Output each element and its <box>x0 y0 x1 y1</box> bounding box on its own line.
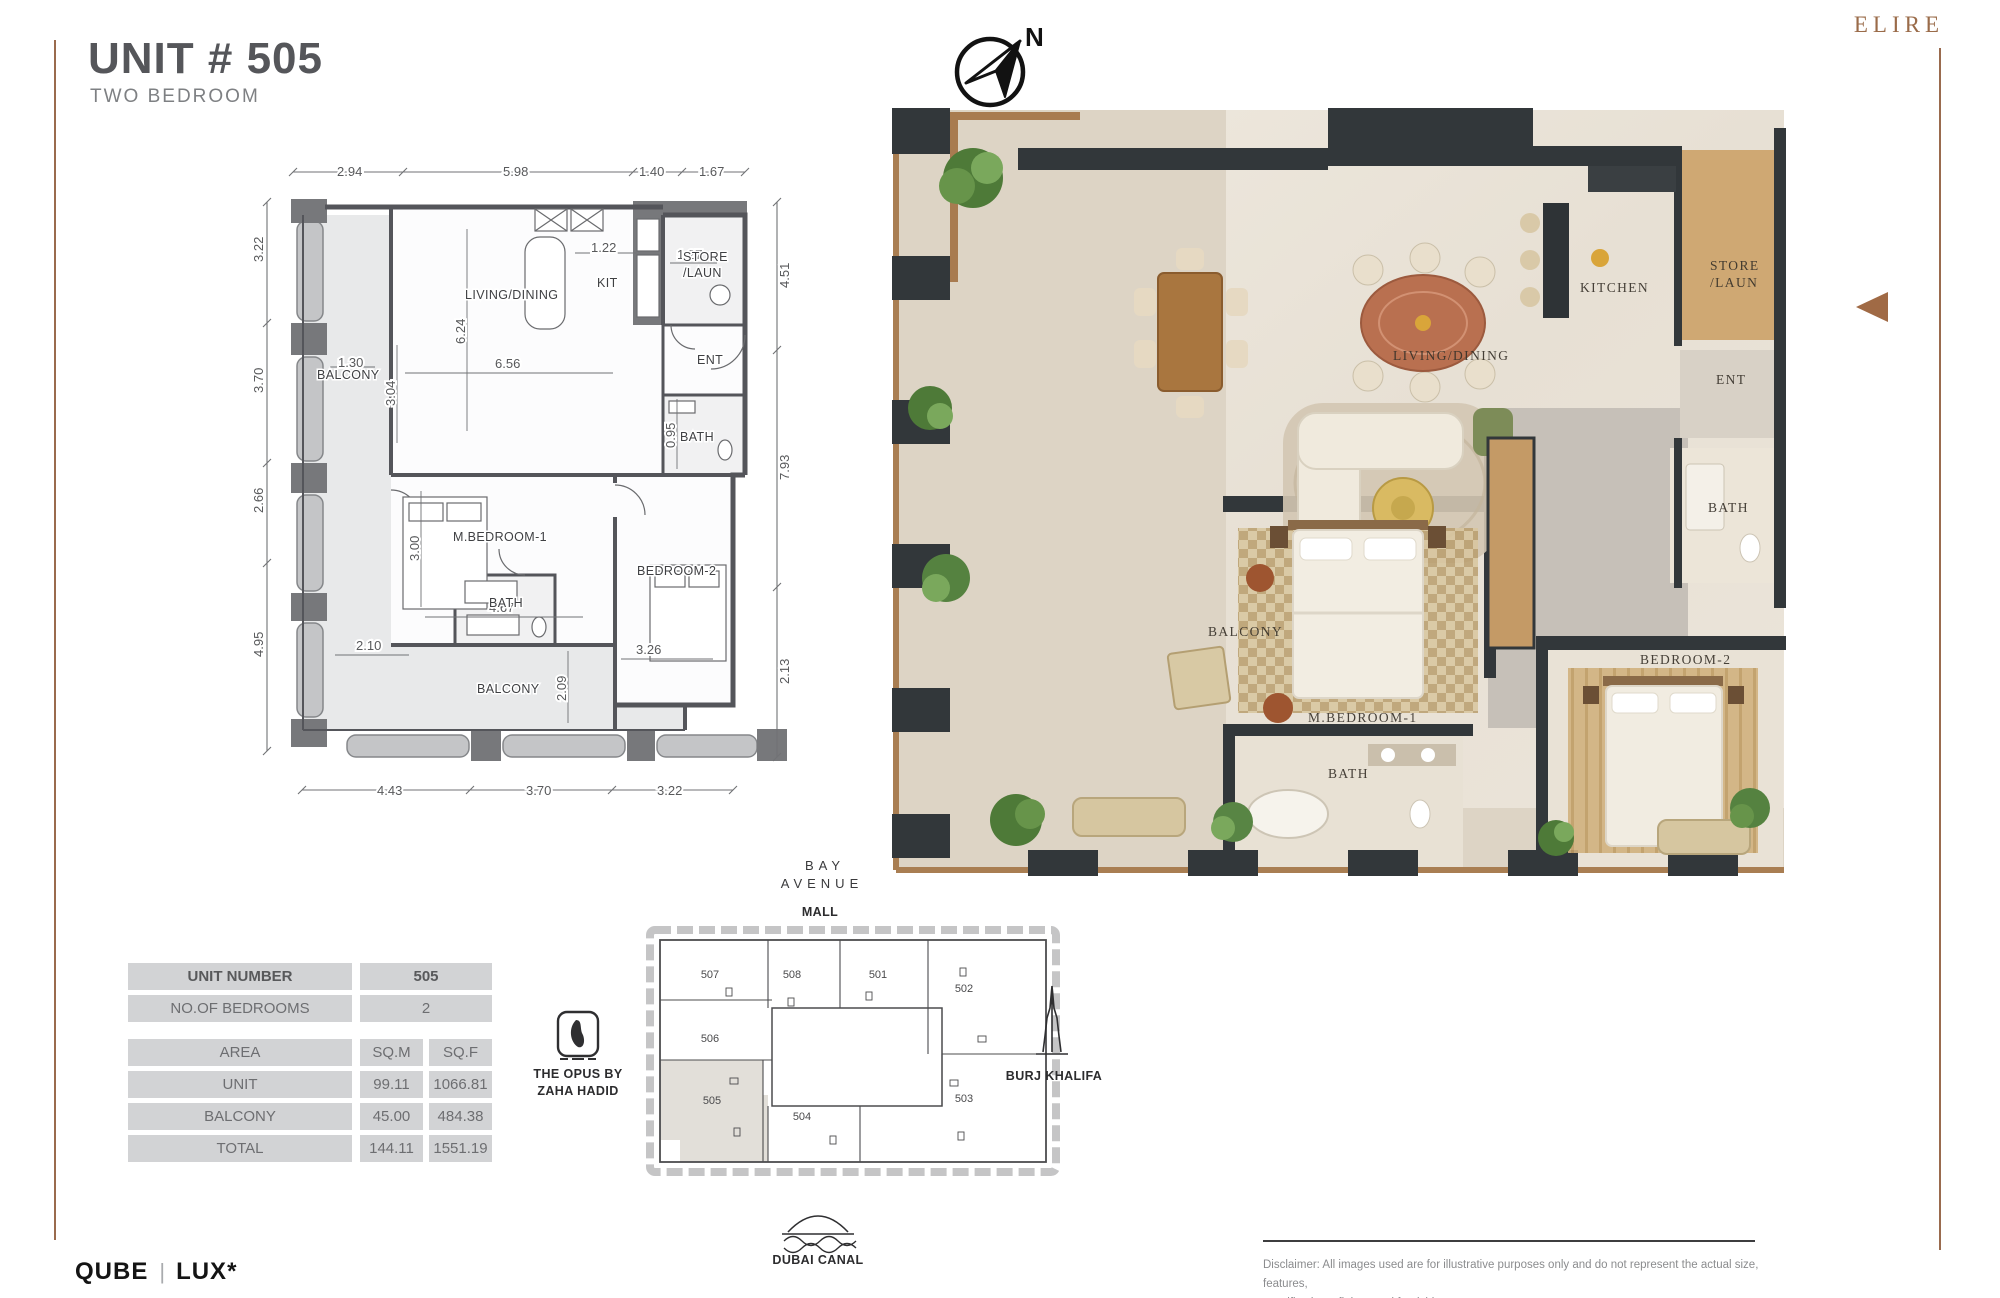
svg-text:3.00: 3.00 <box>407 536 422 561</box>
north-compass-icon: N <box>946 20 1051 120</box>
svg-text:ENT: ENT <box>1716 372 1746 387</box>
svg-text:502: 502 <box>955 983 973 995</box>
svg-text:3.70: 3.70 <box>526 783 551 798</box>
svg-text:4.95: 4.95 <box>251 632 266 657</box>
svg-text:5.98: 5.98 <box>503 164 528 179</box>
svg-text:2.94: 2.94 <box>337 164 362 179</box>
svg-text:507: 507 <box>701 969 719 981</box>
svg-text:KIT: KIT <box>597 276 618 290</box>
svg-text:4.43: 4.43 <box>377 783 402 798</box>
disclaimer-line-2: specifications, fittings and furnishings… <box>1263 1294 1763 1298</box>
unit-info-table: UNIT NUMBER 505 NO.OF BEDROOMS 2 AREA SQ… <box>128 963 500 1167</box>
svg-text:BEDROOM-2: BEDROOM-2 <box>637 564 716 578</box>
svg-text:0.95: 0.95 <box>663 423 678 448</box>
key-plan: BAY AVENUE MALL 507 508 501 <box>530 840 1130 1265</box>
svg-text:BALCONY: BALCONY <box>1208 624 1283 639</box>
bedrooms-value: 2 <box>360 995 492 1022</box>
unit-number-value: 505 <box>360 963 492 990</box>
footer-logos: QUBE | LUX* <box>75 1258 237 1286</box>
svg-text:MALL: MALL <box>802 905 838 919</box>
svg-text:M.BEDROOM-1: M.BEDROOM-1 <box>453 530 547 544</box>
right-accent-rule <box>1939 48 1941 1250</box>
page-title: UNIT # 505 <box>88 34 323 84</box>
disclaimer-rule <box>1263 1240 1755 1242</box>
table-row: AREA SQ.M SQ.F <box>128 1039 500 1066</box>
svg-text:BURJ KHALIFA: BURJ KHALIFA <box>1006 1069 1102 1083</box>
table-row: TOTAL 144.11 1551.19 <box>128 1135 500 1162</box>
total-area-sqm: 144.11 <box>360 1135 423 1162</box>
svg-text:STORE: STORE <box>1710 258 1760 273</box>
svg-text:3.04: 3.04 <box>383 381 398 406</box>
unit-number-label: UNIT NUMBER <box>128 963 352 990</box>
svg-text:505: 505 <box>703 1095 721 1107</box>
unit-area-sqf: 1066.81 <box>429 1071 492 1098</box>
svg-text:ENT: ENT <box>697 353 723 367</box>
svg-text:BATH: BATH <box>680 430 714 444</box>
logo-separator: | <box>159 1259 165 1285</box>
svg-text:THE OPUS BY: THE OPUS BY <box>533 1067 622 1081</box>
svg-text:7.93: 7.93 <box>777 455 792 480</box>
unit-area-sqm: 99.11 <box>360 1071 423 1098</box>
burj-khalifa-landmark: BURJ KHALIFA <box>1006 986 1102 1083</box>
svg-text:KITCHEN: KITCHEN <box>1580 280 1649 295</box>
svg-text:/LAUN: /LAUN <box>1710 275 1758 290</box>
table-row: BALCONY 45.00 484.38 <box>128 1103 500 1130</box>
svg-text:BALCONY: BALCONY <box>477 682 540 696</box>
svg-text:STORE: STORE <box>683 250 728 264</box>
total-area-sqf: 1551.19 <box>429 1135 492 1162</box>
left-accent-rule <box>54 40 56 1240</box>
compass-north-label: N <box>1025 22 1044 52</box>
area-header-sqm: SQ.M <box>360 1039 423 1066</box>
svg-text:/LAUN: /LAUN <box>683 266 722 280</box>
svg-text:2.66: 2.66 <box>251 488 266 513</box>
table-row: NO.OF BEDROOMS 2 <box>128 995 500 1022</box>
keyplan-mall-label: BAY AVENUE MALL <box>781 858 864 919</box>
svg-text:3.22: 3.22 <box>251 237 266 262</box>
floor-plan-drawing: 2.94 5.98 1.40 1.67 3.22 3.70 2.66 4.95 … <box>225 145 805 845</box>
unit-area-label: UNIT <box>128 1071 352 1098</box>
svg-text:BATH: BATH <box>1708 500 1749 515</box>
svg-text:BATH: BATH <box>1328 766 1369 781</box>
svg-text:508: 508 <box>783 969 801 981</box>
svg-text:2.09: 2.09 <box>554 676 569 701</box>
svg-text:1.22: 1.22 <box>591 240 616 255</box>
render-plan: LIVING/DINING KITCHEN STORE /LAUN ENT BA… <box>888 108 1793 883</box>
svg-text:506: 506 <box>701 1033 719 1045</box>
svg-text:BALCONY: BALCONY <box>317 368 380 382</box>
svg-text:6.24: 6.24 <box>453 319 468 344</box>
balcony-area-sqm: 45.00 <box>360 1103 423 1130</box>
area-header-label: AREA <box>128 1039 352 1066</box>
svg-text:4.51: 4.51 <box>777 263 792 288</box>
keyplan-unit-505-highlight <box>660 1060 768 1162</box>
total-area-label: TOTAL <box>128 1135 352 1162</box>
svg-text:6.56: 6.56 <box>495 356 520 371</box>
svg-text:3.22: 3.22 <box>657 783 682 798</box>
bedrooms-label: NO.OF BEDROOMS <box>128 995 352 1022</box>
area-header-sqf: SQ.F <box>429 1039 492 1066</box>
svg-text:DUBAI CANAL: DUBAI CANAL <box>772 1253 863 1265</box>
svg-text:503: 503 <box>955 1093 973 1105</box>
opus-landmark: THE OPUS BY ZAHA HADID <box>533 1012 622 1098</box>
svg-text:3.70: 3.70 <box>251 368 266 393</box>
svg-text:504: 504 <box>793 1111 811 1123</box>
svg-text:1.40: 1.40 <box>639 164 664 179</box>
svg-text:1.67: 1.67 <box>699 164 724 179</box>
plan-windows-bottom <box>347 735 757 757</box>
keyplan-building: 507 508 501 502 506 505 504 503 <box>650 930 1056 1172</box>
svg-text:LIVING/DINING: LIVING/DINING <box>465 288 558 302</box>
svg-text:LIVING/DINING: LIVING/DINING <box>1393 348 1509 363</box>
svg-text:BAY: BAY <box>805 858 845 873</box>
disclaimer-line-1: Disclaimer: All images used are for illu… <box>1263 1256 1763 1294</box>
svg-text:AVENUE: AVENUE <box>781 876 864 891</box>
svg-text:501: 501 <box>869 969 887 981</box>
svg-text:2.10: 2.10 <box>356 638 381 653</box>
balcony-area-sqf: 484.38 <box>429 1103 492 1130</box>
table-row: UNIT NUMBER 505 <box>128 963 500 990</box>
table-row: UNIT 99.11 1066.81 <box>128 1071 500 1098</box>
disclaimer-text: Disclaimer: All images used are for illu… <box>1263 1256 1763 1298</box>
brand-logo: ELIRE <box>1854 12 1944 38</box>
unit-position-arrow-icon <box>1856 292 1888 322</box>
dubai-canal-landmark: DUBAI CANAL <box>772 1216 863 1265</box>
lux-logo: LUX* <box>176 1258 237 1286</box>
svg-text:3.26: 3.26 <box>636 642 661 657</box>
balcony-area-label: BALCONY <box>128 1103 352 1130</box>
svg-text:BEDROOM-2: BEDROOM-2 <box>1640 652 1731 667</box>
svg-text:ZAHA HADID: ZAHA HADID <box>537 1084 618 1098</box>
qube-logo: QUBE <box>75 1258 148 1286</box>
svg-text:M.BEDROOM-1: M.BEDROOM-1 <box>1308 710 1418 725</box>
brochure-page: UNIT # 505 TWO BEDROOM ELIRE N <box>0 0 2000 1298</box>
page-subtitle: TWO BEDROOM <box>90 86 260 108</box>
svg-text:BATH: BATH <box>489 596 523 610</box>
svg-text:2.13: 2.13 <box>777 659 792 684</box>
